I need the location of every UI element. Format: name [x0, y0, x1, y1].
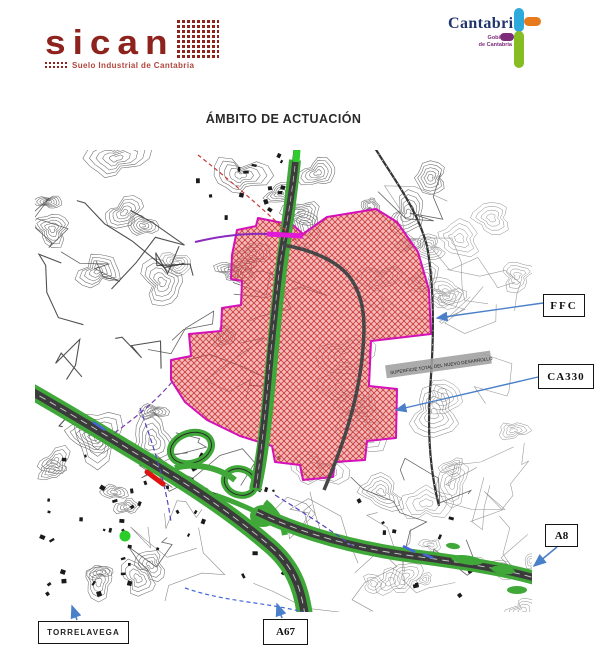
callout-a8: A8 [545, 524, 578, 547]
cantabria-government-text: Gobierno de Cantabria [456, 35, 512, 48]
cantabria-cross-green-icon [514, 31, 524, 68]
cantabria-gov-line2: de Cantabria [456, 42, 512, 49]
green-dot-marker [120, 531, 131, 542]
green-verge-patch [446, 542, 461, 550]
sican-wordmark: sican [45, 28, 175, 57]
cantabria-logo: Cantabria Gobierno de Cantabria [448, 8, 568, 70]
a8-leader-arrow [534, 547, 557, 566]
sican-grid-icon [177, 20, 219, 58]
central-road-green-cap [296, 150, 297, 162]
callout-ca330: CA330 [538, 364, 594, 389]
callout-torrelavega: TORRELAVEGA [38, 621, 129, 644]
sican-logo: sican Suelo Industrial de Cantabria [45, 20, 219, 70]
page-title: ÁMBITO DE ACTUACIÓN [35, 112, 532, 126]
cantabria-cross-orange-icon [524, 17, 541, 26]
magenta-crossing-segment [267, 234, 303, 236]
sican-tagline: Suelo Industrial de Cantabria [72, 61, 194, 70]
topographic-map: SUPERFICIE TOTAL DEL NUEVO DESARROLLO [35, 150, 532, 612]
cantabria-gov-line1: Gobierno [456, 35, 512, 42]
map-figure: SUPERFICIE TOTAL DEL NUEVO DESARROLLO [35, 150, 532, 612]
callout-a67: A67 [263, 619, 308, 645]
cantabria-cross-blue-icon [514, 8, 524, 32]
cantabria-wordmark: Cantabria [448, 15, 522, 33]
interchange-loop-icon [166, 427, 215, 469]
callout-ffc: FFC [543, 294, 585, 317]
area-surface-label: SUPERFICIE TOTAL DEL NUEVO DESARROLLO [385, 350, 493, 378]
blue-dashed-boundary [185, 588, 303, 612]
green-verge-patch [507, 586, 527, 594]
sican-minigrid-icon [45, 62, 67, 70]
